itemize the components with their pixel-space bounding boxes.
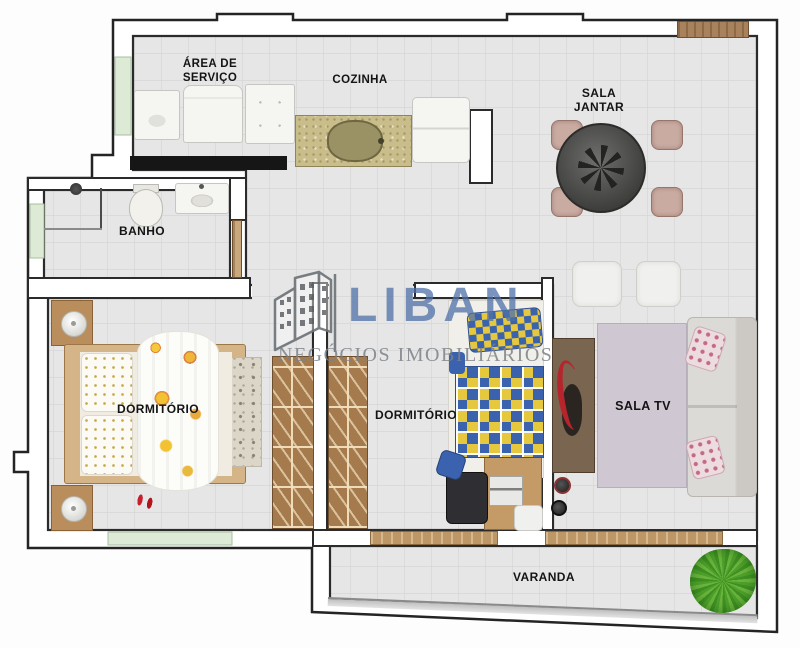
shower-divider-2	[44, 228, 102, 230]
sliding-door-tv-room	[545, 531, 723, 545]
ottoman	[636, 261, 681, 307]
stool	[514, 505, 543, 531]
table-centerpiece-icon	[578, 145, 624, 191]
checkered-blanket	[455, 366, 544, 458]
counter-pass-through	[130, 156, 287, 170]
label-bedroom-left: DORMITÓRIO	[106, 402, 210, 416]
blue-cushion	[449, 352, 465, 374]
label-balcony: VARANDA	[502, 570, 586, 584]
entrance-door	[677, 21, 749, 38]
pillow	[81, 415, 133, 475]
label-bedroom-middle: DORMITÓRIO	[366, 408, 466, 422]
label-tv-room: SALA TV	[606, 399, 680, 414]
window-service-area	[115, 57, 131, 135]
speaker-icon	[554, 477, 571, 494]
speaker-icon	[551, 500, 567, 516]
laundry-tank	[134, 90, 180, 140]
checkered-pillow	[466, 307, 543, 353]
label-kitchen: COZINHA	[325, 74, 395, 88]
refrigerator	[412, 97, 470, 163]
dining-chair	[651, 187, 683, 217]
door-opening-bedroom-left	[252, 279, 311, 300]
dining-chair	[651, 120, 683, 150]
bathroom-door	[232, 220, 242, 278]
sliding-door-bedroom	[370, 531, 498, 545]
shower-divider	[100, 188, 102, 230]
bathroom-faucet-icon	[199, 184, 204, 189]
washing-machine	[183, 85, 243, 143]
office-chair	[446, 472, 488, 524]
label-dining-room: SALA JANTAR	[558, 86, 640, 115]
nightstand	[51, 300, 93, 346]
toilet	[129, 189, 163, 227]
kitchen-faucet-icon	[378, 138, 384, 144]
wardrobe	[272, 356, 314, 529]
shower-head-icon	[70, 183, 82, 195]
floor-plan: ÁREA DE SERVIÇO COZINHA SALA JANTAR BANH…	[0, 0, 800, 648]
door-opening-bedroom-middle	[329, 279, 413, 300]
laptop-icon	[489, 476, 523, 506]
lamp-icon	[61, 496, 87, 522]
label-bathroom: BANHO	[111, 224, 173, 238]
service-cabinet	[245, 84, 295, 144]
window-bathroom	[30, 204, 44, 258]
wardrobe	[328, 356, 368, 529]
ottoman	[572, 261, 622, 307]
lamp-icon	[61, 311, 87, 337]
window-bedroom-left	[108, 532, 232, 545]
label-service-area: ÁREA DE SERVIÇO	[168, 58, 252, 86]
nightstand	[51, 485, 93, 531]
kitchen-sink	[327, 120, 383, 162]
